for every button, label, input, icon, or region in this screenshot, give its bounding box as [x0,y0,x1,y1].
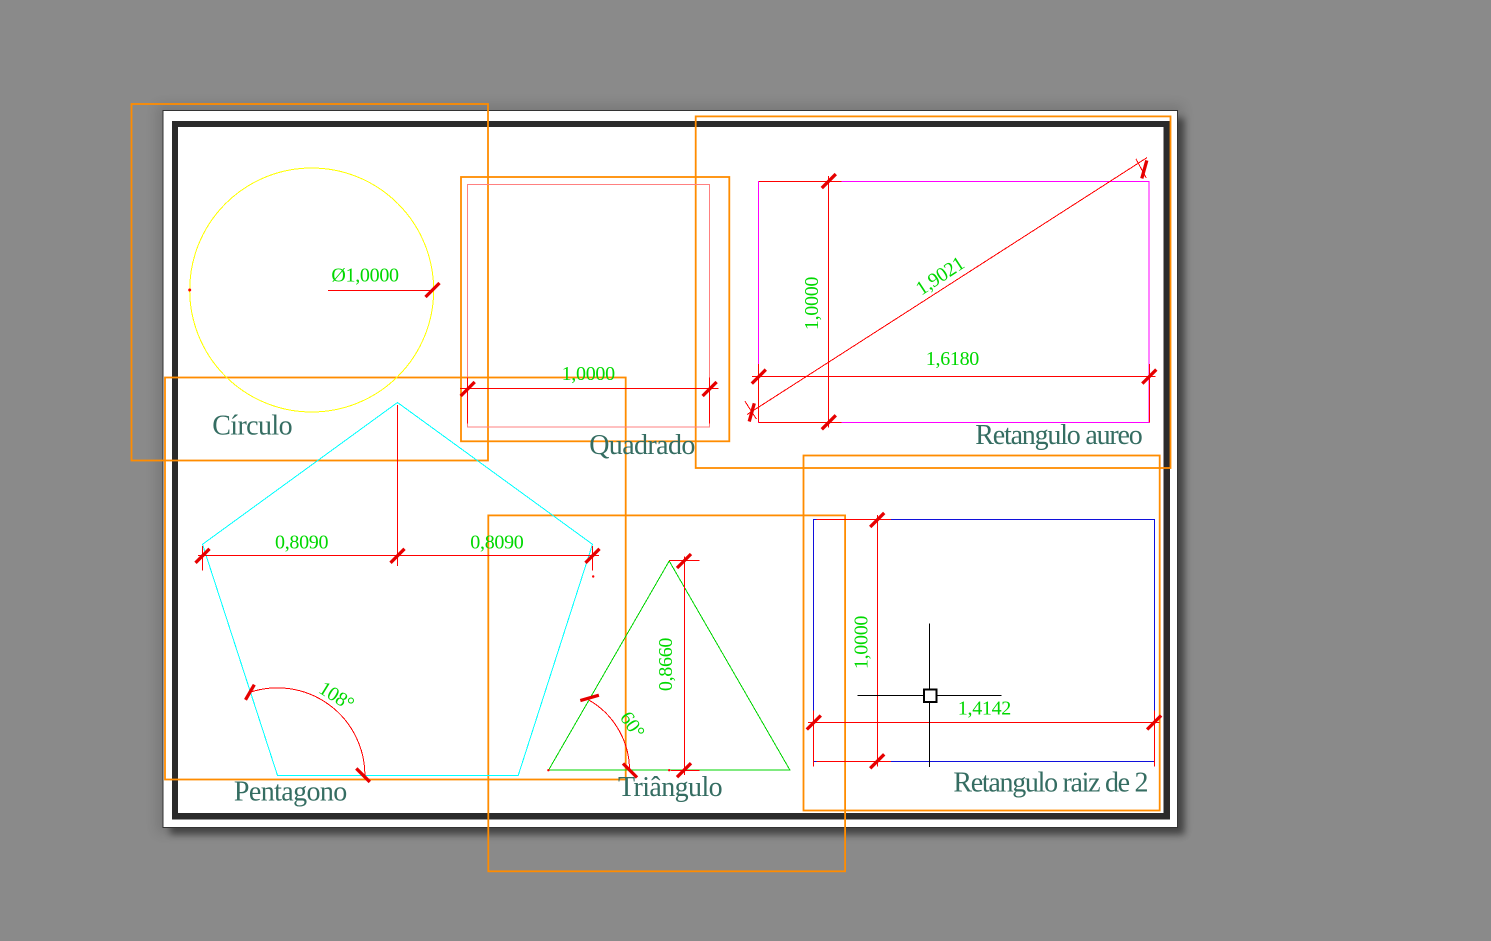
svg-text:1,0000: 1,0000 [562,363,616,385]
svg-text:Círculo: Círculo [212,411,292,442]
svg-text:0,8660: 0,8660 [655,638,677,692]
svg-text:1,0000: 1,0000 [801,277,823,331]
svg-text:Quadrado: Quadrado [589,430,695,461]
svg-text:Retangulo raiz de 2: Retangulo raiz de 2 [953,768,1147,799]
svg-text:Ø1,0000: Ø1,0000 [331,265,399,287]
svg-text:Retangulo aureo: Retangulo aureo [975,420,1141,451]
svg-text:0,8090: 0,8090 [275,532,329,554]
svg-text:1,0000: 1,0000 [851,616,873,670]
svg-text:1,4142: 1,4142 [958,698,1011,720]
svg-text:0,8090: 0,8090 [470,532,524,554]
svg-text:Triângulo: Triângulo [618,772,722,803]
svg-text:1,6180: 1,6180 [926,348,980,370]
svg-text:Pentagono: Pentagono [234,776,347,807]
